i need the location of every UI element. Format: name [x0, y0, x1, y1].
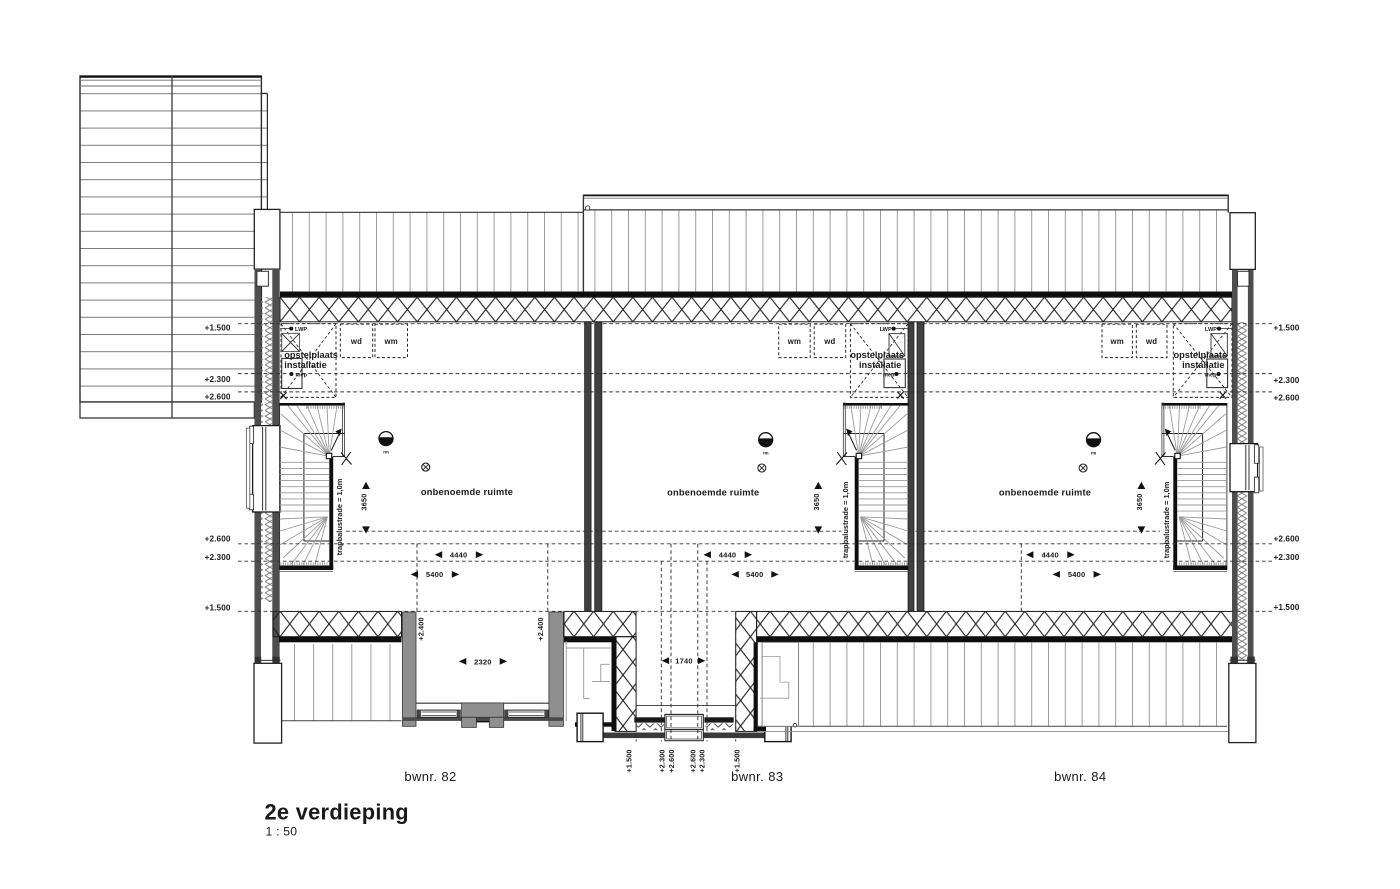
- svg-text:LWP: LWP: [1205, 327, 1217, 333]
- svg-text:+1.500: +1.500: [1274, 324, 1300, 333]
- svg-text:wm: wm: [787, 337, 801, 346]
- svg-text:bwnr. 84: bwnr. 84: [1054, 769, 1106, 784]
- svg-text:onbenoemde ruimte: onbenoemde ruimte: [999, 487, 1091, 497]
- svg-text:wd: wd: [1145, 337, 1157, 346]
- svg-text:mep: mep: [883, 372, 895, 378]
- svg-text:wm: wm: [383, 337, 397, 346]
- svg-text:+2.600: +2.600: [1274, 394, 1300, 403]
- svg-text:rm: rm: [1091, 451, 1097, 456]
- svg-text:4440: 4440: [1041, 551, 1059, 560]
- svg-text:2320: 2320: [474, 657, 492, 666]
- svg-text:+2.300: +2.300: [205, 375, 231, 384]
- svg-text:bwnr. 83: bwnr. 83: [731, 769, 783, 784]
- svg-text:+2.600: +2.600: [205, 392, 231, 401]
- svg-text:5400: 5400: [426, 570, 444, 579]
- svg-text:onbenoemde ruimte: onbenoemde ruimte: [667, 487, 759, 497]
- svg-text:trapbalustrade = 1,0m: trapbalustrade = 1,0m: [841, 481, 850, 558]
- svg-text:4440: 4440: [719, 551, 737, 560]
- svg-text:+2.600: +2.600: [689, 749, 698, 772]
- svg-text:trapbalustrade = 1,0m: trapbalustrade = 1,0m: [335, 478, 344, 555]
- svg-text:+2.300: +2.300: [1274, 376, 1300, 385]
- svg-text:5400: 5400: [1068, 570, 1086, 579]
- svg-text:rm: rm: [383, 450, 389, 455]
- svg-text:+2.600: +2.600: [667, 749, 676, 772]
- svg-text:opstelplaats: opstelplaats: [850, 350, 904, 360]
- svg-text:mep: mep: [1205, 372, 1217, 378]
- svg-text:1740: 1740: [675, 657, 693, 666]
- svg-text:+2.600: +2.600: [205, 534, 231, 543]
- svg-text:+2.400: +2.400: [536, 617, 545, 640]
- svg-text:wd: wd: [823, 337, 835, 346]
- svg-text:LWP: LWP: [880, 327, 892, 333]
- svg-text:rm: rm: [763, 451, 769, 456]
- svg-text:3650: 3650: [1135, 493, 1144, 510]
- svg-text:wd: wd: [350, 337, 362, 346]
- svg-text:+2.300: +2.300: [658, 749, 667, 772]
- svg-text:+2.300: +2.300: [205, 553, 231, 562]
- svg-text:+2.600: +2.600: [1274, 534, 1300, 543]
- svg-text:mep: mep: [296, 372, 308, 378]
- svg-text:installatie: installatie: [1182, 360, 1224, 370]
- svg-text:+1.500: +1.500: [625, 749, 634, 772]
- svg-text:3650: 3650: [812, 493, 821, 510]
- svg-text:onbenoemde ruimte: onbenoemde ruimte: [421, 487, 513, 497]
- svg-text:1 : 50: 1 : 50: [266, 825, 298, 839]
- svg-text:4440: 4440: [450, 551, 468, 560]
- svg-text:2e verdieping: 2e verdieping: [265, 800, 409, 825]
- svg-text:+2.300: +2.300: [698, 749, 707, 772]
- svg-text:+1.500: +1.500: [1274, 603, 1300, 612]
- svg-text:installatie: installatie: [284, 360, 326, 370]
- svg-text:opstelplaats: opstelplaats: [1173, 350, 1227, 360]
- svg-text:LWP: LWP: [295, 327, 307, 333]
- svg-text:installatie: installatie: [859, 360, 901, 370]
- svg-text:trapbalustrade = 1,0m: trapbalustrade = 1,0m: [1162, 481, 1171, 558]
- svg-text:wm: wm: [1109, 337, 1123, 346]
- svg-text:+2.300: +2.300: [1274, 553, 1300, 562]
- svg-text:5400: 5400: [746, 570, 764, 579]
- svg-text:+2.400: +2.400: [417, 617, 426, 640]
- svg-text:+1.500: +1.500: [205, 324, 231, 333]
- svg-text:3650: 3650: [360, 493, 369, 510]
- svg-text:opstelplaats: opstelplaats: [284, 350, 338, 360]
- svg-text:+1.500: +1.500: [205, 604, 231, 613]
- svg-text:bwnr. 82: bwnr. 82: [404, 769, 456, 784]
